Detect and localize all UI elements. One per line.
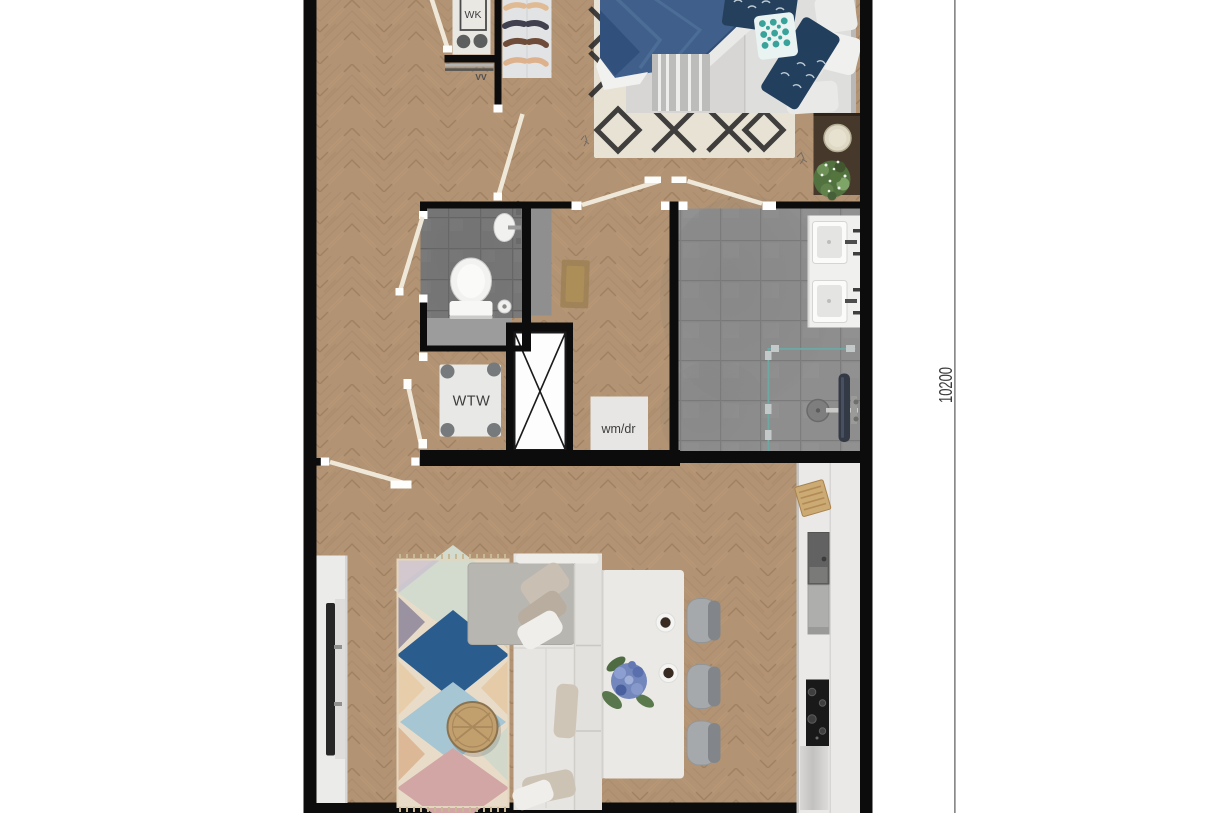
svg-text:VV: VV [475, 72, 487, 82]
svg-text:WK: WK [465, 9, 482, 21]
svg-text:wm/dr: wm/dr [600, 422, 635, 436]
svg-text:WTW: WTW [453, 394, 491, 410]
svg-text:10200: 10200 [935, 367, 956, 403]
